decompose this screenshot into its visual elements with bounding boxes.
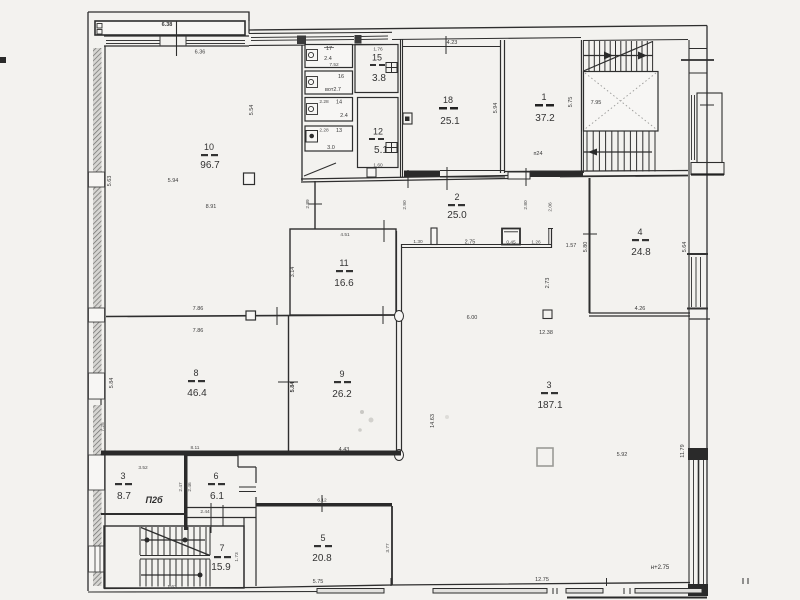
svg-text:8.91: 8.91 <box>206 204 217 210</box>
svg-text:13: 13 <box>336 128 342 134</box>
svg-text:3.8: 3.8 <box>372 73 386 84</box>
svg-text:П2б: П2б <box>145 495 162 505</box>
svg-text:5.54: 5.54 <box>249 105 255 116</box>
svg-text:9: 9 <box>339 369 344 379</box>
svg-text:5.75: 5.75 <box>568 97 574 108</box>
svg-text:3: 3 <box>120 471 125 481</box>
svg-text:6.38: 6.38 <box>162 22 173 28</box>
svg-text:3.14: 3.14 <box>290 267 296 278</box>
svg-text:10: 10 <box>204 142 214 152</box>
svg-text:5.94: 5.94 <box>493 103 499 114</box>
svg-text:14: 14 <box>336 100 342 106</box>
svg-text:2.75: 2.75 <box>465 240 476 246</box>
svg-text:8: 8 <box>193 368 198 378</box>
svg-text:2.80: 2.80 <box>523 200 529 210</box>
svg-text:7.86: 7.86 <box>193 328 204 334</box>
svg-text:1.57: 1.57 <box>566 243 577 249</box>
svg-text:3.52: 3.52 <box>138 465 148 471</box>
svg-text:0.45: 0.45 <box>506 240 516 246</box>
svg-text:6: 6 <box>213 471 218 481</box>
svg-text:2.46: 2.46 <box>187 482 193 492</box>
svg-text:187.1: 187.1 <box>537 400 562 411</box>
svg-text:1.73: 1.73 <box>234 552 240 562</box>
svg-text:96.7: 96.7 <box>200 160 220 171</box>
svg-text:12.75: 12.75 <box>535 577 549 583</box>
svg-text:4.51: 4.51 <box>340 232 350 238</box>
svg-text:25.1: 25.1 <box>440 116 460 127</box>
svg-text:2.90: 2.90 <box>402 200 408 210</box>
svg-text:1: 1 <box>541 92 546 102</box>
svg-text:5.94: 5.94 <box>168 178 179 184</box>
svg-text:3: 3 <box>546 380 551 390</box>
svg-text:12.38: 12.38 <box>539 330 553 336</box>
svg-text:2.89: 2.89 <box>305 199 311 209</box>
svg-text:11.79: 11.79 <box>680 444 686 457</box>
svg-text:7: 7 <box>219 543 224 553</box>
svg-text:н+2.75: н+2.75 <box>651 565 670 571</box>
svg-text:11: 11 <box>339 258 348 268</box>
svg-text:14.63: 14.63 <box>430 414 436 428</box>
svg-text:8.11: 8.11 <box>191 445 200 451</box>
svg-text:5.92: 5.92 <box>617 452 628 458</box>
svg-text:7.52: 7.52 <box>329 62 339 68</box>
svg-text:2: 2 <box>454 192 459 202</box>
svg-text:5.84: 5.84 <box>290 381 296 393</box>
svg-text:6.1: 6.1 <box>210 491 224 502</box>
svg-text:3.0: 3.0 <box>327 145 335 151</box>
svg-text:20.8: 20.8 <box>312 553 332 564</box>
svg-text:16.6: 16.6 <box>334 278 354 289</box>
svg-text:1.30: 1.30 <box>413 239 423 245</box>
svg-text:1.63: 1.63 <box>167 584 177 590</box>
svg-text:2.28: 2.28 <box>319 99 329 105</box>
svg-text:2.73: 2.73 <box>545 278 551 289</box>
svg-text:6.36: 6.36 <box>195 50 206 56</box>
svg-text:6.00: 6.00 <box>467 315 478 321</box>
svg-text:2.06: 2.06 <box>548 202 554 212</box>
svg-text:8.7: 8.7 <box>117 491 131 502</box>
svg-text:12: 12 <box>373 127 383 137</box>
svg-text:5.80: 5.80 <box>583 242 589 253</box>
svg-text:37.2: 37.2 <box>535 113 555 124</box>
svg-text:16: 16 <box>338 74 344 80</box>
svg-text:5: 5 <box>320 533 325 543</box>
svg-text:п24: п24 <box>533 151 542 157</box>
svg-text:2.47: 2.47 <box>178 482 184 492</box>
svg-text:1.26: 1.26 <box>531 240 541 246</box>
svg-text:7.25: 7.25 <box>100 422 106 432</box>
svg-text:2.4: 2.4 <box>324 56 332 62</box>
svg-text:2.44: 2.44 <box>200 509 210 515</box>
svg-text:17: 17 <box>326 46 332 52</box>
svg-text:46.4: 46.4 <box>187 388 207 399</box>
svg-text:5.64: 5.64 <box>682 242 688 253</box>
svg-text:4.26: 4.26 <box>635 306 646 312</box>
svg-text:26.2: 26.2 <box>332 389 352 400</box>
svg-text:5.84: 5.84 <box>109 378 115 389</box>
svg-text:25.0: 25.0 <box>447 210 467 221</box>
svg-text:7.86: 7.86 <box>193 306 204 312</box>
svg-text:2.28: 2.28 <box>319 128 329 134</box>
svg-text:вот2.7: вот2.7 <box>325 87 341 93</box>
svg-text:4.23: 4.23 <box>447 40 458 46</box>
svg-text:18: 18 <box>443 95 453 105</box>
svg-text:2.4: 2.4 <box>340 113 348 119</box>
svg-text:5.63: 5.63 <box>107 176 113 187</box>
svg-text:24.8: 24.8 <box>631 247 651 258</box>
svg-text:5.75: 5.75 <box>313 579 324 585</box>
svg-text:15.9: 15.9 <box>211 562 231 573</box>
svg-text:7.95: 7.95 <box>591 100 602 106</box>
svg-text:15: 15 <box>372 53 382 63</box>
svg-text:4: 4 <box>637 227 642 237</box>
svg-text:3.77: 3.77 <box>385 543 391 553</box>
